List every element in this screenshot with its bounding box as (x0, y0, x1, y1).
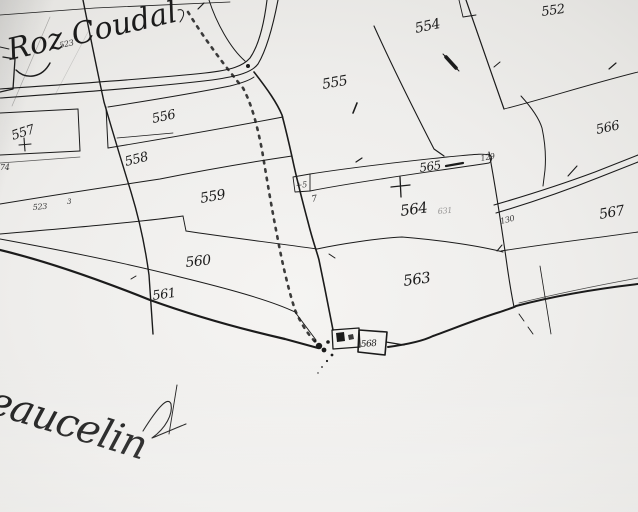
handwritten-annotations: Roz Coudal eaucelin (0, 0, 186, 469)
tick-a (494, 62, 500, 67)
south-parallel-line (519, 278, 638, 303)
south-boundary-east (388, 284, 638, 347)
small-number-wedge-seven: 7 (311, 194, 319, 205)
strip-line-c (0, 157, 80, 163)
dashed-segment (519, 314, 533, 334)
parcel-label-554: 554 (414, 16, 442, 37)
p567-lower-line (501, 232, 638, 251)
parcel-label-558: 558 (123, 150, 149, 170)
survey-marks (19, 54, 616, 279)
tick-561 (131, 276, 136, 279)
parcel-label-559: 559 (199, 187, 227, 207)
road-branch (209, 0, 245, 61)
parcel-label-563: 563 (402, 268, 431, 290)
p559-p560-step (183, 216, 186, 231)
tick-road-right (568, 166, 577, 176)
p556-top (108, 77, 254, 107)
parcel-label-560: 560 (185, 252, 212, 271)
title-end-flourish (178, 10, 184, 22)
p559-p560-boundary-w (0, 216, 183, 234)
building-outline-left (332, 328, 360, 349)
ink-blobs (314, 340, 334, 374)
strip-line-b (0, 151, 80, 155)
p556-bottom (108, 117, 283, 148)
p566-west-curve (521, 96, 545, 186)
tick-top (198, 3, 204, 9)
short-line-under-556 (117, 133, 173, 138)
bottom-script-text: eaucelin (0, 378, 152, 470)
parcel-numbers: 552 554 555 556 557 558 559 560 561 563 … (10, 2, 627, 350)
map-canvas: Roz Coudal eaucelin 552 554 555 556 557 … (0, 0, 638, 512)
parcel-label-555: 555 (321, 73, 349, 93)
ditto-dash-565 (446, 163, 463, 166)
p566-top-line (504, 72, 638, 109)
small-number-left-low: 523 (32, 202, 47, 212)
parcel-label-561: 561 (151, 286, 176, 304)
p559-p560-boundary-e (186, 231, 317, 249)
building-filled-block (336, 332, 345, 342)
cross-mark-564 (391, 177, 410, 197)
parcel-label-566: 566 (595, 118, 621, 138)
script-tall-stroke (169, 385, 177, 434)
small-number-faint: 631 (437, 206, 452, 216)
small-survey-numbers: 523 74 523 3 +5 7 129 130 631 (0, 38, 516, 226)
small-number-wedge-plus: +5 (295, 180, 307, 190)
p554-p555-boundary (374, 26, 444, 156)
parcel-label-552: 552 (540, 2, 565, 20)
small-number-left-sliver: 74 (0, 163, 10, 172)
west-block-boundary (254, 72, 333, 330)
tick-563-boundary (329, 254, 335, 258)
east-block-boundary (489, 152, 514, 307)
boundary-lines (0, 0, 638, 348)
building-extension-line (386, 342, 404, 345)
building-small-block (348, 334, 354, 340)
long-survey-line (83, 0, 153, 334)
parcel-label-564: 564 (399, 198, 428, 220)
strip-riser-a (78, 109, 80, 151)
scanned-map-photo: Roz Coudal eaucelin 552 554 555 556 557 … (0, 0, 638, 512)
bold-pen-stroke-tail (443, 54, 459, 71)
junction-ink-blob (246, 64, 250, 68)
strip-line-a (0, 109, 78, 113)
road-right-upper (494, 155, 638, 205)
parcel-label-568: 568 (361, 339, 378, 350)
parcel-label-565: 565 (418, 158, 441, 175)
parcel-label-567: 567 (598, 203, 626, 223)
p552-p554-boundary (466, 0, 504, 109)
parcel-label-557: 557 (10, 122, 38, 144)
tick-wedge (356, 158, 362, 162)
dotted-footpath (188, 12, 320, 346)
tick-under-555 (353, 103, 357, 113)
small-number-mid-boundary: 130 (499, 214, 515, 226)
tick-567 (497, 245, 502, 251)
region-title: Roz Coudal (3, 0, 180, 68)
small-number-left-tiny: 3 (67, 198, 72, 206)
p563-p564-boundary (317, 237, 503, 252)
tick-b (609, 63, 616, 69)
small-number-strip-end: 129 (480, 152, 496, 163)
building-cluster (314, 328, 405, 374)
parcel-label-556: 556 (151, 107, 177, 127)
